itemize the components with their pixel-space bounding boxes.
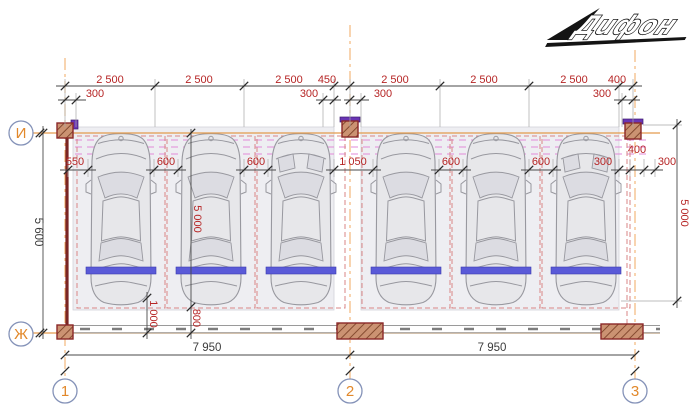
wheel-stop [551, 267, 621, 274]
dim-top-4: 450 [318, 74, 336, 86]
car-top-view [266, 134, 336, 305]
wheel-stop [266, 267, 336, 274]
wheel-stop [176, 267, 246, 274]
wheel-stop [86, 267, 156, 274]
dim-rear-gap: 1 000 [147, 300, 159, 328]
logo-text: Дифон [567, 11, 683, 41]
axis-label-1: 1 [61, 383, 69, 400]
column [601, 324, 643, 339]
dim-stall-depth-left: 5 000 [191, 205, 203, 233]
dim-top-3: 2 500 [275, 74, 303, 86]
dim-offset-2: 300 [300, 88, 318, 100]
car-top-view [371, 134, 441, 305]
company-logo: Дифон [543, 8, 700, 47]
dim-top-6: 2 500 [470, 74, 498, 86]
dim-top-5: 2 500 [381, 74, 409, 86]
wheel-stop [371, 267, 441, 274]
dim-mid-5: 600 [442, 156, 460, 168]
car-top-view [176, 134, 246, 305]
dim-rear-offset: 800 [190, 309, 202, 327]
axis-label-row-bottom: Ж [14, 326, 28, 343]
dim-mid-6: 600 [532, 156, 550, 168]
dim-mid-7: 300 [594, 156, 612, 168]
wheel-stop [461, 267, 531, 274]
dim-mid-9: 300 [658, 156, 676, 168]
car-top-view [86, 134, 156, 305]
axis-label-row-top: И [16, 125, 27, 142]
axis-label-3: 3 [631, 383, 639, 400]
dim-bottom-2: 7 950 [478, 342, 507, 354]
dim-top-8: 400 [608, 74, 626, 86]
dim-mid-8: 400 [628, 144, 646, 156]
dim-mid-3: 600 [247, 156, 265, 168]
dim-stall-depth-right: 5 000 [678, 199, 690, 227]
dim-top-7: 2 500 [560, 74, 588, 86]
dim-depth-total: 5 600 [32, 218, 44, 247]
column [57, 325, 73, 339]
dim-mid-2: 600 [157, 156, 175, 168]
column [337, 323, 383, 339]
axis-label-2: 2 [346, 383, 354, 400]
dim-bottom-1: 7 950 [193, 342, 222, 354]
dim-mid-1: 550 [66, 156, 84, 168]
dim-top-1: 2 500 [96, 74, 124, 86]
dim-offset-1: 300 [86, 88, 104, 100]
dim-mid-4: 1 050 [339, 156, 367, 168]
parking-plan-drawing: 2 500 2 500 2 500 450 2 500 2 500 2 500 … [0, 0, 700, 418]
car-top-view [461, 134, 531, 305]
dim-offset-3: 300 [374, 88, 392, 100]
dim-offset-4: 300 [593, 88, 611, 100]
dim-top-2: 2 500 [185, 74, 213, 86]
parking-plan-canvas: 2 500 2 500 2 500 450 2 500 2 500 2 500 … [0, 0, 700, 418]
